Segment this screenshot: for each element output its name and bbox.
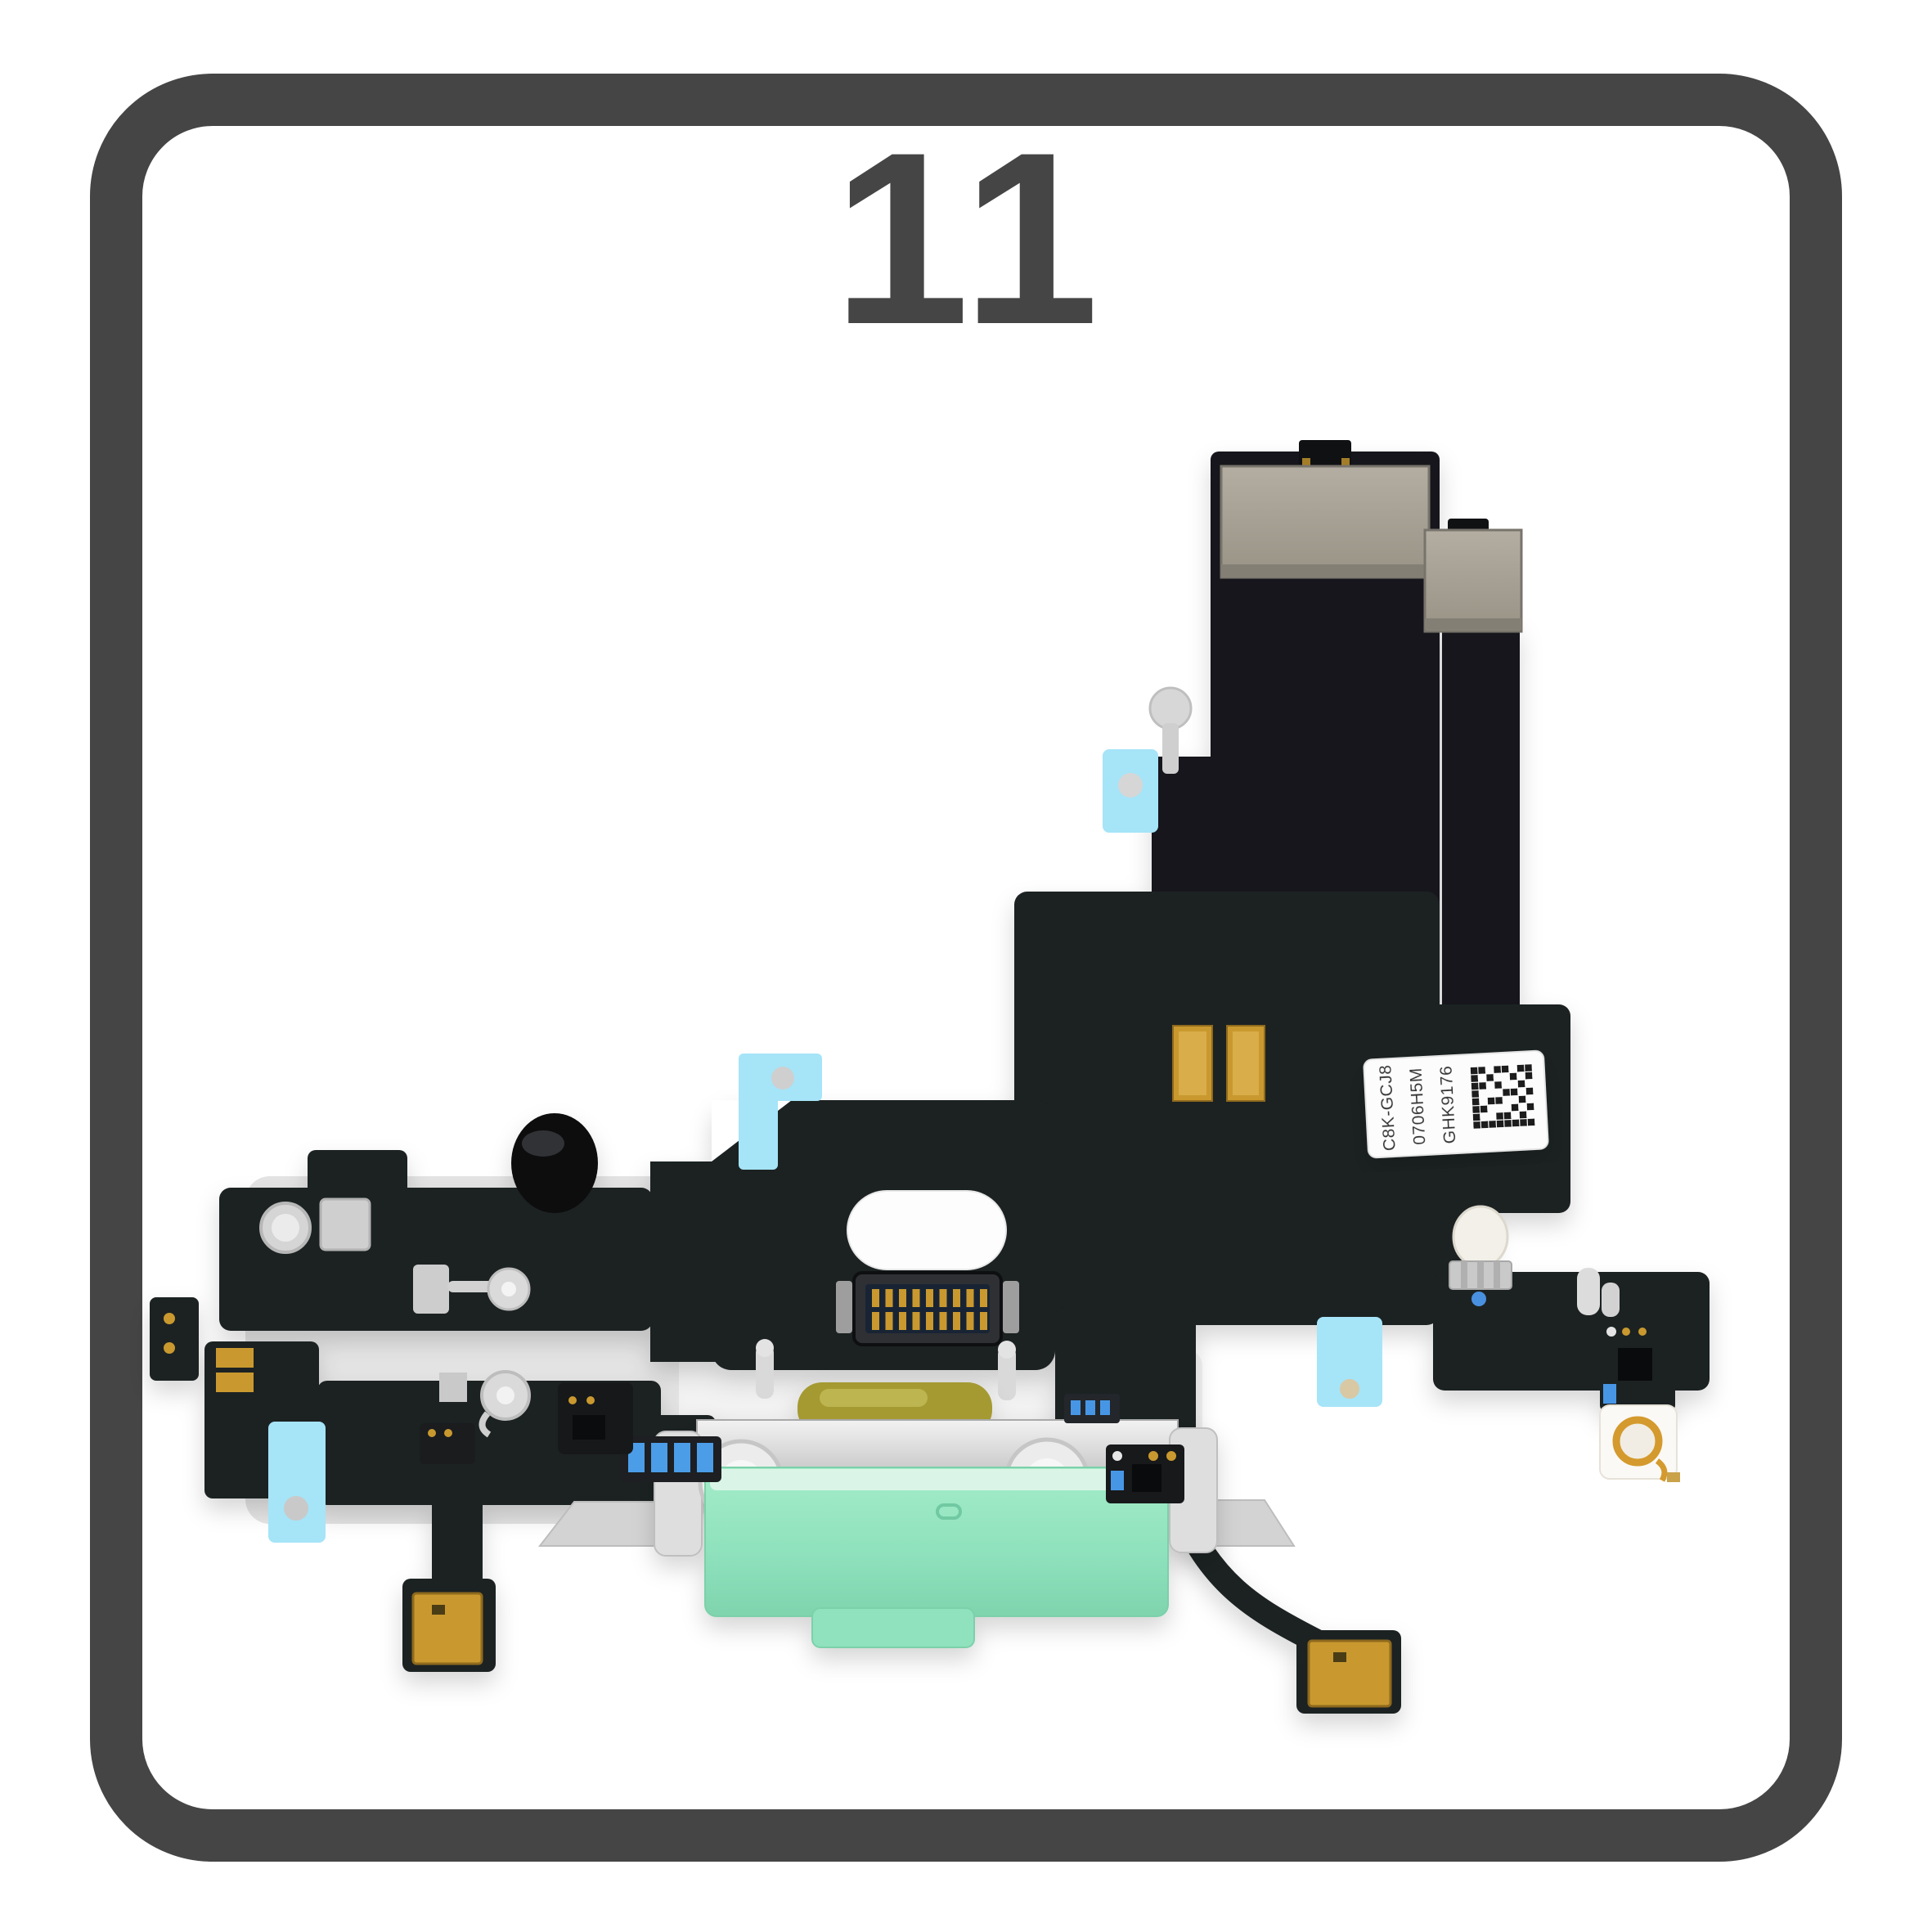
oval-hole bbox=[847, 1191, 1006, 1269]
microphone-gold-pad bbox=[413, 1593, 482, 1664]
vibration-motor-highlight bbox=[522, 1130, 564, 1157]
lightning-connector-assembly bbox=[654, 1382, 1217, 1647]
product-card: 11 bbox=[0, 0, 1932, 1932]
flash-led-component bbox=[1453, 1206, 1507, 1267]
vibration-motor bbox=[511, 1113, 598, 1213]
product-photo: 11 bbox=[0, 0, 1932, 1932]
microphone-gold-pad bbox=[1309, 1641, 1391, 1706]
serial-label: C8K-GCJ8 0706H5M GHK9176 bbox=[1364, 1050, 1548, 1157]
model-number-heading: 11 bbox=[833, 101, 1105, 375]
